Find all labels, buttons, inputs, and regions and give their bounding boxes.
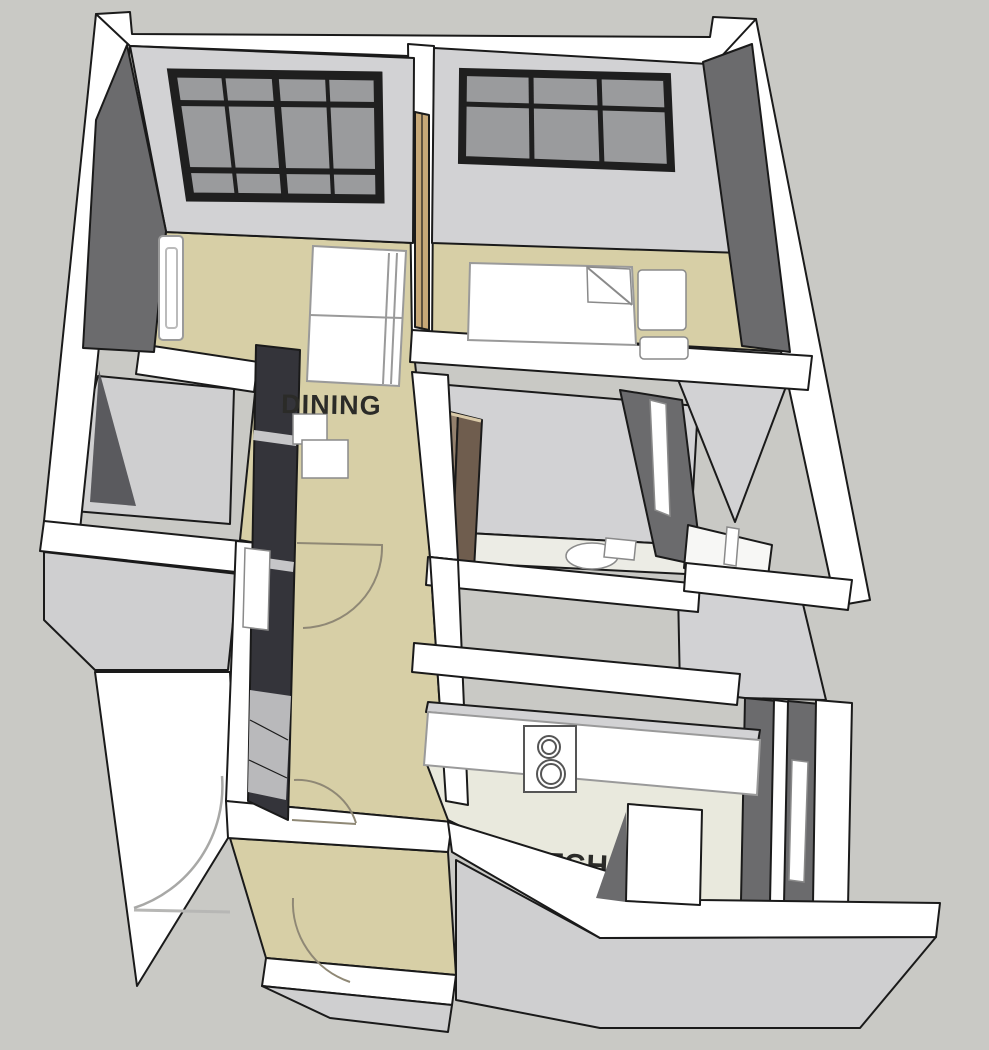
dining-window-rail-bottom bbox=[185, 170, 380, 172]
kitchen-east-jamb bbox=[813, 700, 852, 907]
dining-window bbox=[172, 73, 380, 199]
toilet-tank bbox=[604, 538, 636, 560]
bedroom-window bbox=[462, 72, 671, 168]
nightstand-lower bbox=[640, 337, 688, 359]
radiator-living bbox=[159, 236, 183, 340]
entry-threshold-line bbox=[134, 910, 230, 912]
nightstand-upper bbox=[638, 270, 686, 330]
wardrobe-lower-panel bbox=[248, 690, 291, 800]
bedroom-window-mullion-2 bbox=[599, 75, 602, 166]
dining-window-rail-top bbox=[176, 103, 379, 105]
kitchen-stub-wall bbox=[626, 804, 702, 905]
radiator-corridor bbox=[724, 527, 739, 566]
vestibule-floor bbox=[230, 838, 456, 975]
floorplan-3d-svg: KITCHEN bbox=[0, 0, 989, 1050]
radiator-balcony bbox=[789, 760, 808, 882]
dining-label: DINING bbox=[281, 389, 382, 421]
bedroom-window-frame bbox=[462, 72, 671, 168]
coffee-box-2 bbox=[302, 440, 348, 478]
bedroom-window-mullion-1 bbox=[531, 74, 532, 163]
hall-shelf bbox=[243, 548, 270, 630]
model-viewport[interactable]: KITCHEN bbox=[0, 0, 989, 1050]
